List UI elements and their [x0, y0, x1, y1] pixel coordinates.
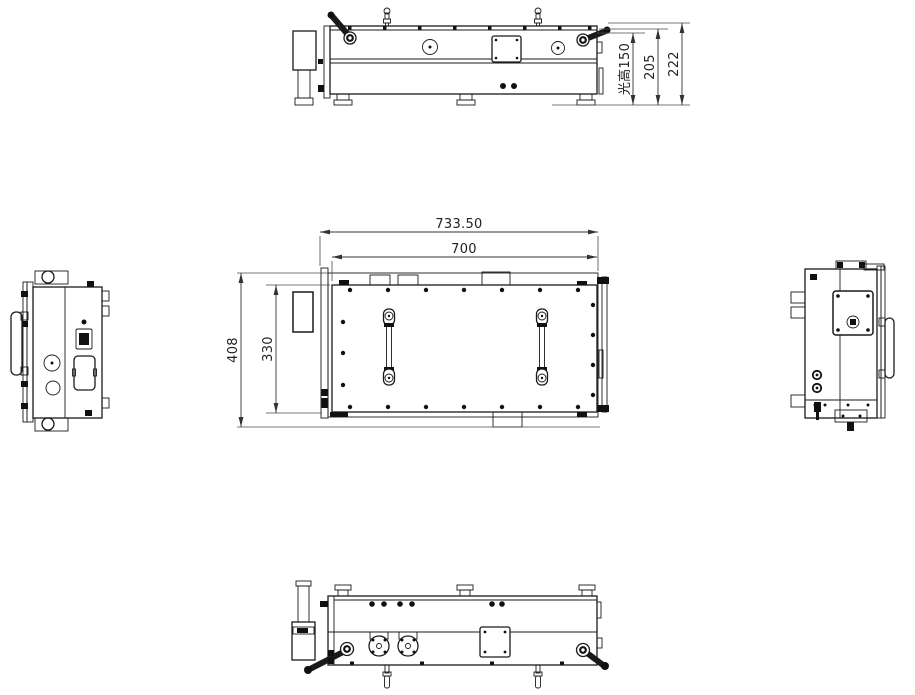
adjust-knob-left — [423, 40, 438, 55]
isolator-column-front — [293, 31, 316, 105]
lid-handle-left — [384, 309, 395, 385]
rear-feet — [335, 585, 595, 596]
bottom-valve-right — [534, 665, 542, 688]
lid-handle-right — [537, 309, 548, 385]
dim-overall-height: 222 — [667, 51, 682, 77]
dim-overall-length: 733.50 — [435, 217, 482, 232]
dim-body-length: 700 — [451, 242, 477, 257]
dim-optical-height: 光高150 — [617, 43, 633, 95]
engineering-drawing: 光高150 205 222 — [0, 0, 915, 695]
adjust-knob-right — [552, 42, 565, 55]
top-valve-left — [384, 8, 391, 26]
lifting-handle-bottom-right — [577, 644, 610, 671]
dim-body-width: 330 — [261, 336, 276, 362]
lifting-handle-top-right — [577, 27, 611, 47]
usb-port — [76, 329, 92, 349]
left-side-view — [11, 271, 109, 431]
front-feet — [334, 94, 595, 105]
button-indicator — [44, 355, 60, 395]
top-valve-right — [535, 8, 542, 26]
laser-head-plate — [833, 291, 873, 335]
front-dimensions: 光高150 205 222 — [552, 23, 690, 105]
rail-right — [602, 277, 607, 412]
water-flange-left — [369, 632, 389, 656]
plan-bottom-tabs — [330, 412, 587, 427]
dim-overall-width: 408 — [226, 337, 241, 363]
dim-body-height: 205 — [643, 54, 658, 80]
lifting-handle-top-left — [328, 12, 357, 45]
plan-top-tabs — [339, 272, 587, 285]
bottom-valve-left — [383, 665, 391, 688]
lid-screws — [341, 288, 595, 409]
plan-view: 733.50 700 408 330 — [226, 217, 609, 427]
water-flange-right — [398, 632, 418, 656]
lid-screw-ticks — [348, 27, 592, 30]
isolator-column-rear — [292, 581, 315, 660]
left-body — [33, 287, 102, 418]
front-view: 光高150 205 222 — [293, 8, 690, 105]
right-side-view — [791, 261, 894, 431]
rear-access-panel — [480, 627, 510, 657]
isolator-column-plan — [293, 292, 313, 332]
rear-connector-holes — [369, 601, 505, 607]
front-access-plate — [492, 36, 521, 62]
rear-view — [292, 581, 609, 688]
rear-body — [328, 596, 597, 665]
lid-panel — [332, 285, 597, 412]
front-body — [318, 8, 611, 105]
power-socket — [73, 356, 97, 390]
